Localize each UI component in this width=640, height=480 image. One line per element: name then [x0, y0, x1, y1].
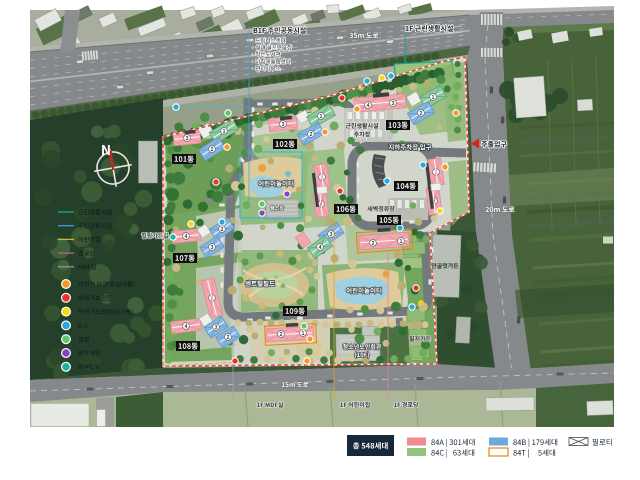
- svg-text:3: 3: [330, 232, 333, 238]
- svg-text:2: 2: [211, 147, 214, 153]
- svg-text:3: 3: [211, 245, 214, 251]
- svg-text:1: 1: [223, 129, 226, 135]
- svg-text:4: 4: [367, 103, 370, 109]
- svg-text:2: 2: [280, 332, 283, 338]
- svg-text:4: 4: [185, 234, 188, 240]
- svg-text:3: 3: [186, 136, 189, 142]
- svg-text:3: 3: [215, 325, 218, 331]
- svg-text:2: 2: [372, 241, 375, 247]
- svg-text:1: 1: [400, 239, 403, 245]
- svg-text:3: 3: [392, 101, 395, 107]
- svg-text:4: 4: [185, 324, 188, 330]
- svg-text:1: 1: [302, 331, 305, 337]
- svg-text:3: 3: [282, 122, 285, 128]
- svg-text:2: 2: [420, 111, 423, 117]
- svg-text:2: 2: [310, 132, 313, 138]
- svg-text:2: 2: [221, 227, 224, 233]
- svg-text:1: 1: [320, 114, 323, 120]
- svg-text:1: 1: [432, 95, 435, 101]
- svg-text:4: 4: [319, 245, 322, 251]
- svg-text:2: 2: [227, 335, 230, 341]
